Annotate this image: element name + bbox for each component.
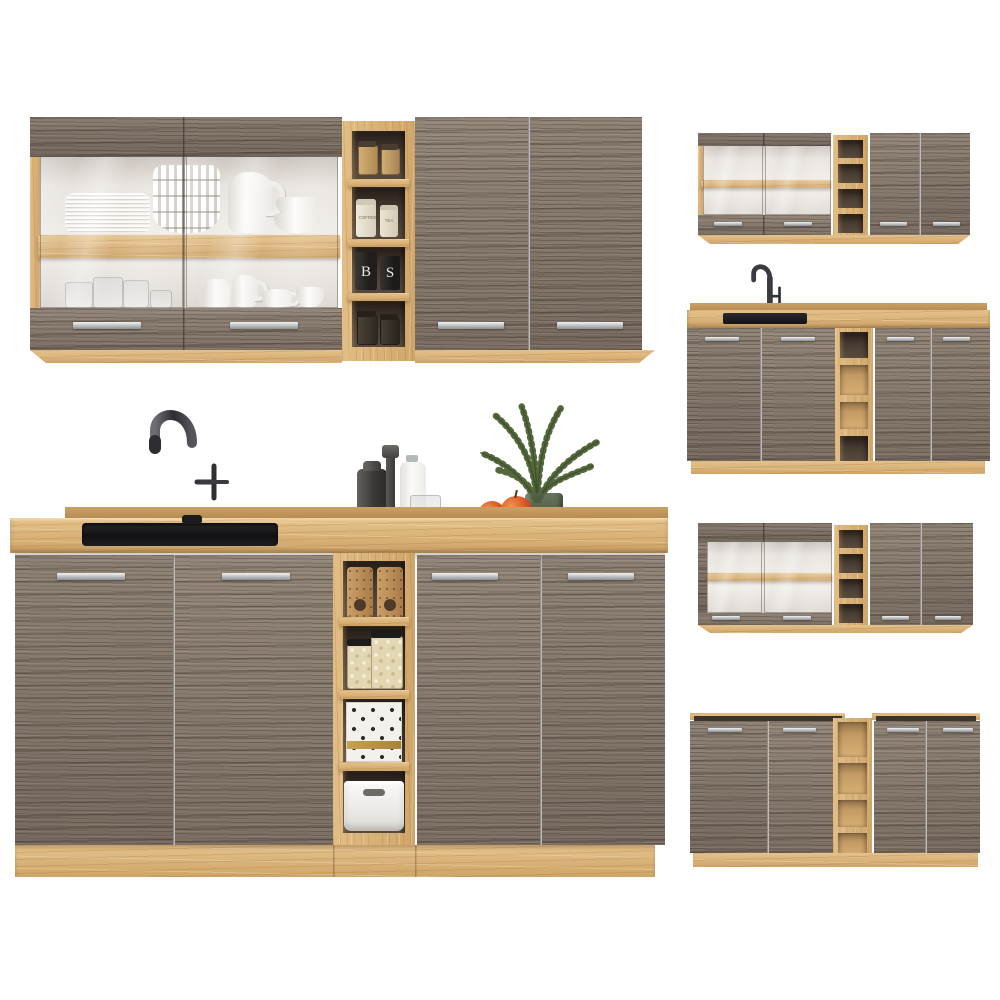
jar-of-popcorn — [371, 636, 403, 689]
door-handle — [432, 573, 498, 580]
door-handle — [781, 337, 815, 341]
door-handle — [230, 322, 298, 329]
jar-lid — [347, 639, 373, 646]
white-storage-basket — [344, 781, 404, 831]
door-handle — [943, 728, 973, 732]
cubby — [838, 189, 863, 208]
grain-jar — [358, 145, 378, 175]
open-shelf-unit — [833, 135, 868, 239]
base-door — [762, 328, 835, 461]
wall-cabinet-bottom-panel — [30, 350, 342, 363]
door-handle — [568, 573, 634, 580]
coffee-label: COFFEE — [359, 216, 373, 221]
door-handle — [783, 728, 816, 732]
door-seam — [925, 721, 927, 853]
kitchen-cabinet-product-image: COFFEE TEA B S — [0, 0, 1000, 1000]
door-seam — [767, 721, 769, 853]
door-handle — [783, 616, 811, 620]
cubby — [343, 626, 405, 690]
dark-jar — [380, 318, 400, 345]
seam — [763, 523, 765, 542]
cubby — [839, 604, 863, 623]
jar-lid — [380, 314, 398, 320]
open-shelf-unit — [833, 718, 872, 853]
jar-lid — [358, 141, 376, 147]
grinder-top — [382, 445, 399, 458]
shaker-cap — [363, 461, 381, 471]
door-seam — [920, 523, 922, 625]
canister-lid — [380, 205, 398, 210]
closed-door — [870, 133, 919, 235]
open-shelf-unit — [835, 328, 873, 461]
cubby: COFFEE TEA — [352, 187, 405, 239]
door-handle — [438, 322, 504, 329]
door-handle — [557, 322, 623, 329]
door-handle — [705, 337, 739, 341]
kitchen-sink — [723, 313, 807, 324]
glass-door-left — [703, 145, 763, 215]
base-door — [690, 721, 767, 853]
wall-cabinet-bottom-panel — [415, 350, 655, 363]
plinth — [691, 461, 985, 474]
grain-jar — [381, 148, 400, 175]
cubby — [343, 771, 405, 833]
wall-cabinet-bottom-band — [30, 308, 342, 350]
bottle-cap — [406, 455, 418, 462]
seam — [763, 215, 765, 235]
base-door — [175, 555, 333, 845]
door-handle — [935, 616, 961, 620]
cubby — [352, 131, 405, 179]
cubby — [840, 332, 868, 358]
bag-stamp — [384, 599, 396, 611]
base-door — [687, 328, 760, 461]
door-handle — [57, 573, 125, 580]
plinth — [693, 853, 978, 867]
glass-door-right — [764, 541, 832, 613]
door-handle — [887, 337, 914, 341]
bottom-panel — [698, 625, 973, 633]
base-door — [927, 721, 980, 853]
cabinet-door-right — [530, 117, 642, 350]
plinth-seam — [415, 845, 417, 877]
basket-handle-slot — [363, 789, 385, 796]
bag-stamp — [354, 599, 366, 611]
wall-cabinet-set-bottom-view — [698, 523, 973, 633]
cubby — [838, 214, 863, 233]
faucet — [140, 395, 240, 525]
door-handle — [712, 616, 740, 620]
black-canister-s: S — [380, 256, 400, 290]
door-handle — [943, 337, 970, 341]
wall-closed-cabinet — [415, 117, 642, 350]
cubby — [838, 763, 867, 794]
glass-door-left — [707, 541, 762, 613]
closed-door — [922, 523, 973, 625]
tea-canister: TEA — [380, 205, 398, 237]
plinth-seam — [333, 845, 335, 877]
door-seam — [919, 133, 921, 235]
jar-lid — [371, 630, 401, 638]
cubby — [838, 164, 863, 183]
door-seam — [760, 328, 762, 461]
cabinet-door-left — [415, 117, 528, 350]
wall-glass-cabinet — [30, 117, 342, 350]
door-seam — [183, 155, 185, 308]
jar-lid — [357, 311, 376, 317]
dark-jar — [357, 315, 378, 345]
base-cabinet-set-carcass-view — [690, 713, 980, 867]
wall-cabinet-set-front-view — [698, 133, 970, 245]
tea-label: TEA — [383, 219, 396, 224]
plinth — [15, 845, 655, 877]
base-cabinet-set-sink-view — [687, 258, 990, 474]
base-door — [769, 721, 833, 853]
shelf — [348, 239, 409, 247]
cubby — [840, 365, 868, 395]
bottom-panel — [698, 235, 970, 244]
kitchen-sink — [82, 523, 278, 546]
wall-cabinet-top-band — [30, 117, 342, 157]
door-handle — [882, 616, 909, 620]
door-handle — [222, 573, 290, 580]
base-cabinet-set-main — [10, 395, 672, 880]
door-handle — [714, 222, 742, 226]
door-handle — [880, 222, 907, 226]
shelf — [339, 690, 409, 699]
base-open-shelf-unit — [333, 553, 415, 845]
cubby — [838, 722, 867, 757]
base-door — [875, 328, 930, 461]
cubby: B S — [352, 247, 405, 293]
base-door — [417, 555, 540, 845]
pasta-box-band — [347, 741, 401, 749]
top-band — [698, 523, 832, 542]
door-handle — [784, 222, 812, 226]
glass-door-right — [765, 145, 831, 215]
door-handle — [933, 222, 960, 226]
cubby — [839, 530, 863, 548]
cubby — [840, 402, 868, 429]
door-seam — [528, 117, 530, 350]
inner-side-panel — [698, 541, 707, 613]
base-door — [874, 721, 925, 853]
door-handle — [887, 728, 919, 732]
glass-door-right — [186, 155, 338, 308]
wall-open-shelf-unit: COFFEE TEA B S — [342, 121, 415, 361]
cubby — [343, 699, 405, 762]
shelf — [348, 179, 409, 187]
coffee-canister: COFFEE — [356, 199, 376, 237]
plant-greenery — [460, 401, 615, 503]
door-handle — [73, 322, 141, 329]
cubby — [838, 140, 863, 158]
seam — [763, 133, 765, 146]
door-seam — [930, 328, 932, 461]
cubby — [343, 561, 405, 617]
closed-door — [870, 523, 920, 625]
closed-door — [921, 133, 970, 235]
bottom-band-seam — [183, 308, 185, 350]
open-shelf-unit — [834, 525, 868, 629]
cubby — [352, 301, 405, 347]
shelf — [348, 293, 409, 301]
glass-door-left — [40, 155, 183, 308]
cubby — [840, 436, 868, 461]
cubby — [839, 554, 863, 573]
base-door — [15, 555, 173, 845]
canister-lid — [356, 199, 376, 205]
shelf — [339, 617, 409, 626]
jar-lid — [381, 144, 398, 150]
black-canister-b: B — [355, 252, 377, 290]
door-handle — [708, 728, 742, 732]
cubby — [838, 800, 867, 827]
pasta-box — [346, 702, 402, 762]
base-door — [542, 555, 665, 845]
top-band-seam — [183, 117, 185, 157]
wall-cabinet-set-main: COFFEE TEA B S — [30, 117, 660, 369]
shelf — [339, 762, 409, 771]
cubby — [839, 579, 863, 598]
base-door — [932, 328, 990, 461]
